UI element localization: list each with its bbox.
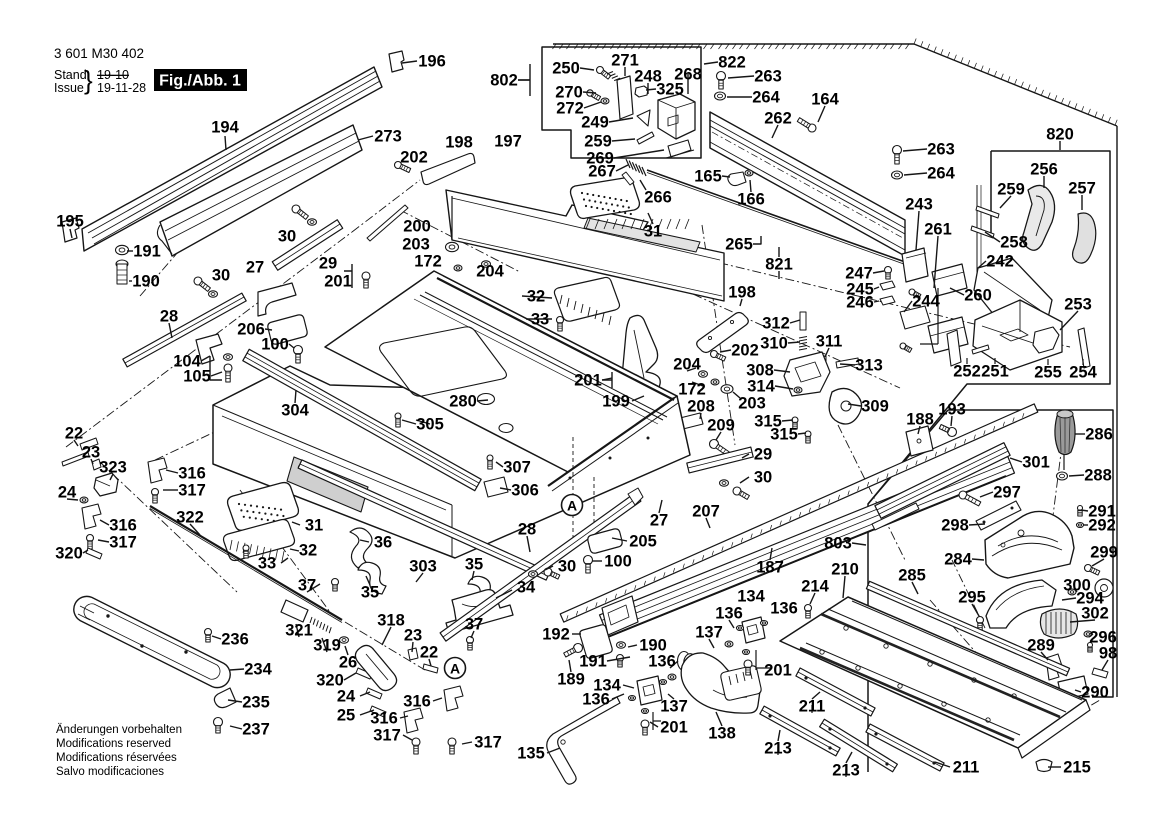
- svg-text:35: 35: [361, 584, 379, 602]
- svg-text:272: 272: [556, 100, 584, 118]
- svg-text:24: 24: [58, 484, 77, 502]
- svg-text:208: 208: [687, 398, 715, 416]
- svg-text:255: 255: [1034, 364, 1062, 382]
- svg-text:203: 203: [402, 236, 430, 254]
- svg-text:316: 316: [109, 517, 137, 535]
- svg-text:317: 317: [109, 534, 137, 552]
- svg-text:33: 33: [531, 311, 549, 329]
- svg-text:314: 314: [747, 378, 775, 396]
- svg-text:256: 256: [1030, 161, 1058, 179]
- svg-text:134: 134: [737, 588, 765, 606]
- svg-text:251: 251: [981, 363, 1009, 381]
- svg-text:316: 316: [370, 710, 398, 728]
- svg-text:250: 250: [552, 60, 580, 78]
- svg-text:197: 197: [494, 133, 522, 151]
- svg-text:203: 203: [738, 395, 766, 413]
- svg-text:290: 290: [1081, 684, 1109, 702]
- svg-text:310: 310: [760, 335, 788, 353]
- svg-text:261: 261: [924, 221, 952, 239]
- svg-text:A: A: [567, 498, 577, 514]
- svg-text:284: 284: [944, 551, 972, 569]
- svg-text:303: 303: [409, 558, 437, 576]
- svg-text:202: 202: [731, 342, 759, 360]
- svg-text:260: 260: [964, 287, 992, 305]
- svg-text:136: 136: [770, 600, 798, 618]
- svg-text:}: }: [84, 65, 93, 95]
- svg-text:192: 192: [542, 626, 570, 644]
- svg-text:Änderungen vorbehalten: Änderungen vorbehalten: [56, 724, 182, 736]
- svg-text:201: 201: [660, 719, 688, 737]
- svg-text:213: 213: [764, 740, 792, 758]
- svg-text:199: 199: [602, 393, 630, 411]
- svg-text:30: 30: [754, 469, 772, 487]
- svg-text:172: 172: [414, 253, 442, 271]
- svg-text:165: 165: [694, 168, 722, 186]
- svg-text:265: 265: [725, 236, 753, 254]
- svg-text:262: 262: [764, 110, 792, 128]
- svg-text:A: A: [450, 661, 460, 677]
- svg-text:259: 259: [584, 133, 612, 151]
- svg-text:243: 243: [905, 196, 933, 214]
- svg-text:820: 820: [1046, 126, 1074, 144]
- svg-text:319: 319: [313, 637, 341, 655]
- svg-text:263: 263: [754, 68, 782, 86]
- svg-text:307: 307: [503, 459, 531, 477]
- svg-text:Fig./Abb. 1: Fig./Abb. 1: [159, 73, 241, 90]
- svg-text:317: 317: [373, 727, 401, 745]
- svg-text:207: 207: [692, 503, 720, 521]
- svg-text:257: 257: [1068, 180, 1096, 198]
- svg-text:258: 258: [1000, 234, 1028, 252]
- svg-text:306: 306: [511, 482, 539, 500]
- svg-text:803: 803: [824, 535, 852, 553]
- svg-text:246: 246: [846, 294, 874, 312]
- svg-text:266: 266: [644, 189, 672, 207]
- svg-text:164: 164: [811, 91, 839, 109]
- svg-text:299: 299: [1090, 544, 1118, 562]
- svg-text:295: 295: [958, 589, 986, 607]
- svg-text:301: 301: [1022, 454, 1050, 472]
- svg-text:300: 300: [1063, 577, 1091, 595]
- svg-text:198: 198: [445, 134, 473, 152]
- svg-text:138: 138: [708, 725, 736, 743]
- svg-text:302: 302: [1081, 605, 1109, 623]
- svg-text:242: 242: [986, 253, 1014, 271]
- svg-text:313: 313: [855, 357, 883, 375]
- svg-text:249: 249: [581, 114, 609, 132]
- svg-text:28: 28: [160, 308, 178, 326]
- svg-text:201: 201: [574, 372, 602, 390]
- svg-text:198: 198: [728, 284, 756, 302]
- svg-text:136: 136: [648, 653, 676, 671]
- svg-text:215: 215: [1063, 759, 1091, 777]
- svg-text:210: 210: [831, 561, 859, 579]
- svg-text:136: 136: [582, 691, 610, 709]
- svg-text:311: 311: [816, 333, 843, 351]
- svg-text:191: 191: [579, 653, 607, 671]
- svg-text:267: 267: [588, 163, 616, 181]
- svg-text:204: 204: [476, 263, 504, 281]
- svg-text:263: 263: [927, 141, 955, 159]
- svg-text:297: 297: [993, 484, 1021, 502]
- svg-text:100: 100: [604, 553, 632, 571]
- svg-text:312: 312: [762, 315, 790, 333]
- svg-text:214: 214: [801, 578, 829, 596]
- svg-text:23: 23: [404, 627, 422, 645]
- svg-text:Stand: Stand: [54, 68, 87, 82]
- svg-text:191: 191: [133, 243, 161, 261]
- svg-text:236: 236: [221, 631, 249, 649]
- svg-text:317: 317: [474, 734, 502, 752]
- svg-text:27: 27: [650, 512, 668, 530]
- svg-text:137: 137: [660, 698, 688, 716]
- svg-text:802: 802: [490, 72, 518, 90]
- svg-text:19-11-28: 19-11-28: [97, 81, 146, 95]
- svg-text:305: 305: [416, 416, 444, 434]
- svg-text:286: 286: [1085, 426, 1113, 444]
- svg-text:98: 98: [1099, 645, 1117, 663]
- svg-text:273: 273: [374, 128, 402, 146]
- svg-text:280: 280: [449, 393, 477, 411]
- svg-text:323: 323: [99, 459, 127, 477]
- svg-text:31: 31: [305, 517, 323, 535]
- svg-text:200: 200: [403, 218, 431, 236]
- svg-text:189: 189: [557, 671, 585, 689]
- svg-text:211: 211: [799, 698, 826, 716]
- svg-text:201: 201: [324, 273, 352, 291]
- svg-text:172: 172: [678, 381, 706, 399]
- svg-text:Issue: Issue: [54, 81, 84, 95]
- svg-text:285: 285: [898, 567, 926, 585]
- svg-text:26: 26: [339, 654, 357, 672]
- svg-text:29: 29: [319, 255, 337, 273]
- svg-text:322: 322: [176, 509, 204, 527]
- svg-text:325: 325: [656, 81, 684, 99]
- svg-text:34: 34: [517, 579, 536, 597]
- svg-text:25: 25: [337, 707, 355, 725]
- svg-text:202: 202: [400, 149, 428, 167]
- svg-text:22: 22: [420, 644, 438, 662]
- svg-text:321: 321: [285, 622, 313, 640]
- svg-text:187: 187: [756, 559, 784, 577]
- svg-text:27: 27: [246, 259, 264, 277]
- svg-text:28: 28: [518, 521, 536, 539]
- svg-text:36: 36: [374, 534, 392, 552]
- svg-text:204: 204: [673, 356, 701, 374]
- svg-text:264: 264: [927, 165, 955, 183]
- svg-text:821: 821: [765, 256, 793, 274]
- svg-text:292: 292: [1088, 517, 1116, 535]
- svg-text:32: 32: [299, 542, 317, 560]
- svg-text:32: 32: [527, 288, 545, 306]
- svg-text:30: 30: [558, 558, 576, 576]
- svg-text:237: 237: [242, 721, 270, 739]
- svg-text:37: 37: [465, 616, 483, 634]
- svg-text:166: 166: [737, 191, 765, 209]
- svg-text:309: 309: [861, 398, 889, 416]
- svg-text:317: 317: [178, 482, 206, 500]
- svg-text:196: 196: [418, 53, 446, 71]
- svg-text:Modifications reserved: Modifications reserved: [56, 738, 171, 750]
- svg-text:137: 137: [695, 624, 723, 642]
- svg-text:24: 24: [337, 688, 356, 706]
- svg-text:33: 33: [258, 555, 276, 573]
- svg-text:135: 135: [517, 745, 545, 763]
- svg-text:235: 235: [242, 694, 270, 712]
- svg-text:194: 194: [211, 119, 239, 137]
- svg-text:23: 23: [82, 444, 100, 462]
- svg-text:188: 188: [906, 411, 934, 429]
- svg-text:264: 264: [752, 89, 780, 107]
- svg-text:195: 195: [56, 213, 84, 231]
- svg-text:244: 244: [912, 293, 940, 311]
- svg-text:234: 234: [244, 661, 272, 679]
- svg-text:201: 201: [764, 662, 792, 680]
- svg-text:252: 252: [953, 363, 981, 381]
- svg-text:31: 31: [644, 223, 662, 241]
- svg-text:30: 30: [212, 267, 230, 285]
- svg-text:209: 209: [707, 417, 735, 435]
- svg-text:105: 105: [183, 368, 211, 386]
- svg-text:304: 304: [281, 402, 309, 420]
- svg-text:254: 254: [1069, 364, 1097, 382]
- svg-text:288: 288: [1084, 467, 1112, 485]
- svg-text:Salvo modificaciones: Salvo modificaciones: [56, 766, 164, 778]
- svg-text:259: 259: [997, 181, 1025, 199]
- svg-text:30: 30: [278, 228, 296, 246]
- svg-text:315: 315: [770, 426, 798, 444]
- svg-text:822: 822: [718, 54, 746, 72]
- svg-text:193: 193: [938, 401, 966, 419]
- svg-text:35: 35: [465, 556, 483, 574]
- svg-text:37: 37: [298, 577, 316, 595]
- svg-text:22: 22: [65, 425, 83, 443]
- svg-text:320: 320: [55, 545, 83, 563]
- svg-text:316: 316: [403, 693, 431, 711]
- svg-text:136: 136: [715, 605, 743, 623]
- svg-text:318: 318: [377, 612, 405, 630]
- svg-text:316: 316: [178, 465, 206, 483]
- svg-text:Modifications réservées: Modifications réservées: [56, 752, 177, 764]
- svg-text:298: 298: [941, 517, 969, 535]
- svg-text:100: 100: [261, 336, 289, 354]
- svg-text:190: 190: [132, 273, 160, 291]
- svg-text:213: 213: [832, 762, 860, 780]
- svg-text:29: 29: [754, 446, 772, 464]
- svg-text:205: 205: [629, 533, 657, 551]
- svg-text:289: 289: [1027, 637, 1055, 655]
- svg-text:3 601 M30 402: 3 601 M30 402: [54, 46, 144, 61]
- svg-text:253: 253: [1064, 296, 1092, 314]
- svg-text:19-10: 19-10: [97, 68, 129, 82]
- svg-text:211: 211: [953, 759, 980, 777]
